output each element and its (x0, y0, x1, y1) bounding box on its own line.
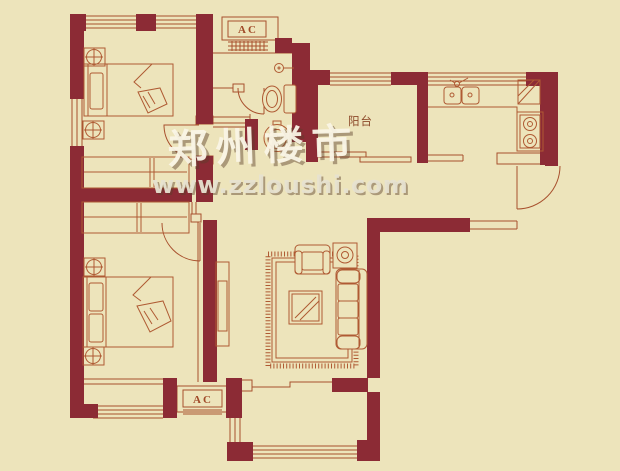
floor-plan-page: AC 阳台 AC 郑州楼市 郑州楼市 www.zzloushi.com www.… (0, 0, 620, 471)
ceiling-lamp-icon (83, 121, 104, 139)
ac-bottom-label: AC (193, 394, 213, 406)
wall-segment (367, 392, 380, 442)
wall-segment (367, 232, 380, 378)
bedroom2-sill (84, 379, 163, 384)
bedroom2-bed (83, 277, 173, 347)
wall-segment (70, 14, 84, 99)
bedroom2-door (162, 214, 201, 261)
bay-bottom-window (253, 446, 357, 458)
bay-sill (252, 382, 332, 387)
wall-segment (332, 378, 368, 392)
toilet (263, 85, 297, 113)
watermark-url-group: www.zzloushi.com www.zzloushi.com (152, 171, 410, 201)
stove (517, 112, 543, 151)
bedroom1-left-window (72, 99, 82, 146)
ceiling-lamp-icon (85, 48, 103, 66)
ceiling-lamp-icon (83, 347, 104, 365)
wall-segment (136, 14, 156, 31)
ac-top-label: AC (238, 24, 258, 36)
bedroom2-wardrobe (82, 202, 189, 233)
kitchen-sink (444, 78, 479, 104)
living-room-furniture (216, 243, 367, 366)
wall-segment (226, 378, 242, 418)
bedroom2-bottom-window (93, 406, 163, 418)
kitchen-fixtures (428, 78, 543, 151)
bedroom2-wall-face (192, 202, 198, 382)
wall-segment (163, 378, 177, 418)
sofa (336, 269, 367, 349)
bedroom1-furniture (83, 48, 173, 139)
wall-segment (417, 72, 428, 163)
wall-segment (203, 220, 217, 382)
bedroom1-bed (84, 64, 173, 116)
side-table-lamp (333, 243, 357, 268)
bay-left-window (230, 418, 240, 442)
coffee-table (289, 291, 322, 324)
watermark-url: www.zzloushi.com (152, 171, 408, 199)
wall-segment (357, 440, 380, 461)
kitchen-counter (428, 107, 517, 112)
ceiling-lamp-icon (84, 258, 105, 276)
balcony-window (330, 73, 391, 85)
watermark-brand: 郑州楼市 (167, 120, 361, 174)
bathroom-door (233, 84, 264, 114)
armchair (295, 245, 330, 274)
wall-segment (391, 72, 428, 85)
entry-step-wall (470, 221, 517, 229)
watermark: 郑州楼市 郑州楼市 (167, 119, 364, 176)
wall-segment (196, 14, 213, 124)
wall-segment (227, 442, 253, 461)
wall-segment (70, 404, 98, 418)
kitchen-window (428, 73, 526, 85)
tv-cabinet (216, 262, 229, 346)
floor-plan-svg: AC 阳台 AC 郑州楼市 郑州楼市 www.zzloushi.com www.… (0, 0, 620, 471)
shower-head-icon (275, 64, 295, 73)
wall-segment (367, 218, 470, 232)
wall-segment (275, 38, 292, 53)
bedroom2-furniture (83, 258, 173, 365)
